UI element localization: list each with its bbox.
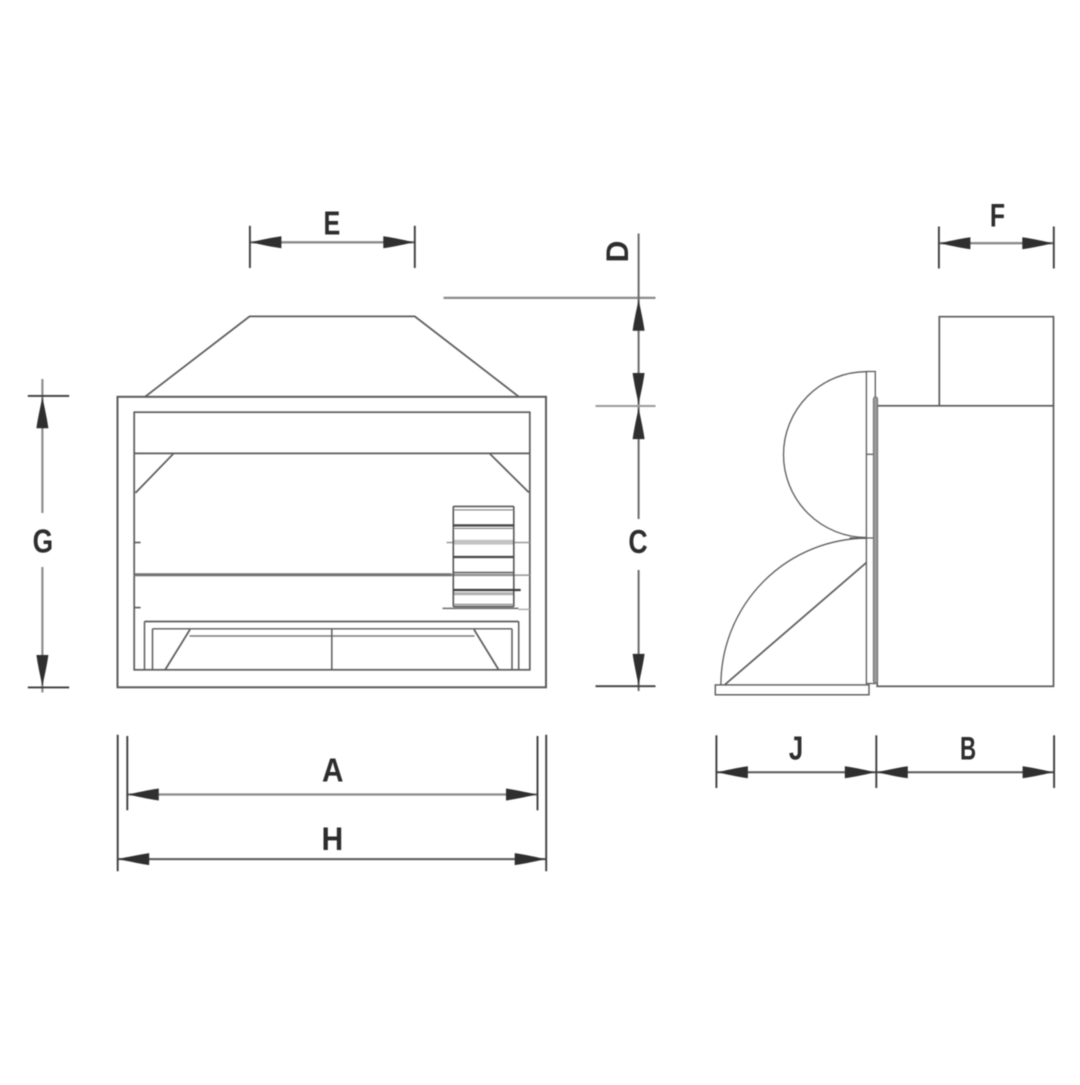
svg-text:H: H bbox=[321, 821, 343, 857]
svg-text:C: C bbox=[628, 524, 647, 560]
svg-text:D: D bbox=[599, 241, 635, 263]
svg-text:B: B bbox=[960, 730, 976, 766]
svg-text:J: J bbox=[789, 730, 803, 767]
svg-text:E: E bbox=[324, 205, 341, 242]
svg-text:A: A bbox=[322, 751, 344, 789]
svg-text:G: G bbox=[33, 524, 53, 561]
svg-text:F: F bbox=[990, 198, 1005, 234]
